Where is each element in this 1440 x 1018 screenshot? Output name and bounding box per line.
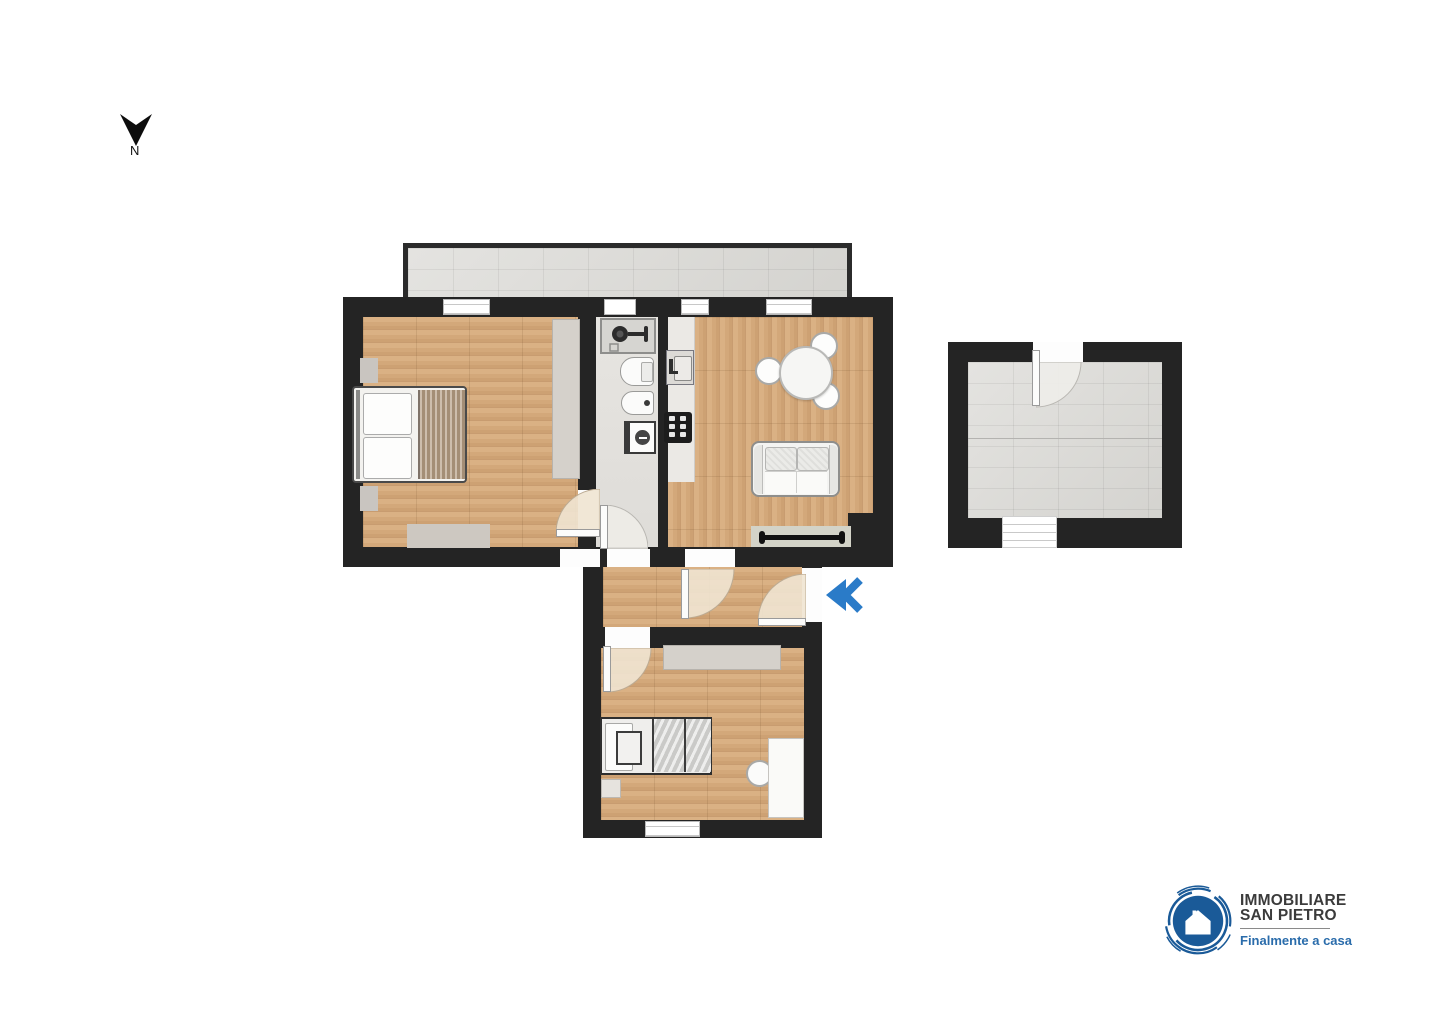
bedroom2-window [645, 821, 700, 837]
bedroom-window [443, 299, 490, 315]
sofa-armrest [829, 445, 838, 494]
agency-logo: IMMOBILIARE SAN PIETRO Finalmente a casa [1156, 879, 1416, 963]
living-door-leaf [681, 569, 689, 619]
washing-machine [624, 421, 656, 454]
cellar-floor-seam [968, 438, 1162, 439]
toilet [620, 357, 654, 386]
cellar-door-leaf [1032, 350, 1040, 406]
pillow [363, 393, 412, 435]
bathroom-opening [607, 549, 650, 567]
sofa-cushion [797, 447, 829, 471]
sofa-seat-divider [796, 471, 797, 493]
nightstand [601, 779, 621, 798]
sink-faucet [669, 359, 673, 371]
bed-blanket [418, 390, 465, 479]
bidet [621, 391, 654, 415]
balcony [403, 243, 852, 303]
bed-headboard [356, 390, 360, 479]
sink-faucet-arm [669, 371, 678, 374]
shower [600, 318, 656, 354]
radiator-icon [757, 529, 847, 545]
bedroom-rug [407, 524, 490, 548]
bathroom-door-leaf [600, 505, 608, 549]
bedroom2-opening [605, 627, 650, 648]
washer-panel [626, 423, 630, 452]
kitchen-counter [668, 317, 695, 482]
living-door-arc [685, 569, 735, 619]
north-label: N [130, 143, 139, 158]
wardrobe [663, 645, 781, 670]
kitchen-window [681, 299, 709, 315]
living-room-floor [668, 317, 873, 547]
house-logo-icon [1156, 879, 1240, 963]
blanket-seam [684, 719, 686, 772]
cellar-door-opening [1033, 342, 1083, 362]
single-bed [600, 717, 712, 775]
agency-name: IMMOBILIARE SAN PIETRO Finalmente a casa [1240, 893, 1352, 948]
bedroom-door-leaf [556, 529, 600, 537]
shower-fixture-icon [602, 320, 654, 352]
sofa-armrest [754, 445, 763, 494]
bedroom-door-arc [556, 489, 600, 533]
sofa-cushion [765, 447, 797, 471]
pillow [363, 437, 412, 479]
floorplan-page: N [0, 0, 1440, 1018]
sofa [751, 441, 840, 497]
agency-name-line2: SAN PIETRO [1240, 908, 1352, 923]
bidet-tap [644, 400, 650, 406]
bedroom2-door-arc [607, 648, 652, 693]
bathroom-window [604, 299, 636, 315]
desk [768, 738, 804, 818]
agency-tagline: Finalmente a casa [1240, 933, 1352, 948]
entry-door-arc [758, 574, 806, 622]
stove [664, 412, 692, 443]
agency-name-line1: IMMOBILIARE [1240, 893, 1352, 908]
compass: N [116, 112, 160, 164]
wall-jog [848, 513, 873, 547]
entry-door-leaf [758, 618, 806, 626]
sink-basin [674, 356, 692, 381]
logo-divider [1240, 928, 1330, 929]
toilet-tank [641, 362, 653, 382]
bed-blanket [652, 719, 711, 772]
stove-burners-icon [664, 412, 692, 443]
bedroom-opening [560, 549, 600, 567]
wall-pier [360, 486, 378, 511]
wardrobe [552, 319, 580, 479]
double-bed [352, 386, 467, 483]
dining-table [779, 346, 833, 400]
entrance-arrow-icon [824, 577, 864, 613]
living-opening [685, 549, 735, 567]
kitchen-sink [666, 350, 694, 385]
cellar-door-arc [1036, 362, 1082, 408]
pillow-frame [616, 731, 642, 765]
bedroom2-door-leaf [603, 646, 611, 692]
bathroom-door-arc [604, 505, 648, 549]
wall-pier [360, 358, 378, 383]
cellar-steps [1002, 516, 1057, 548]
living-window [766, 299, 812, 315]
washer-handle [639, 437, 647, 439]
